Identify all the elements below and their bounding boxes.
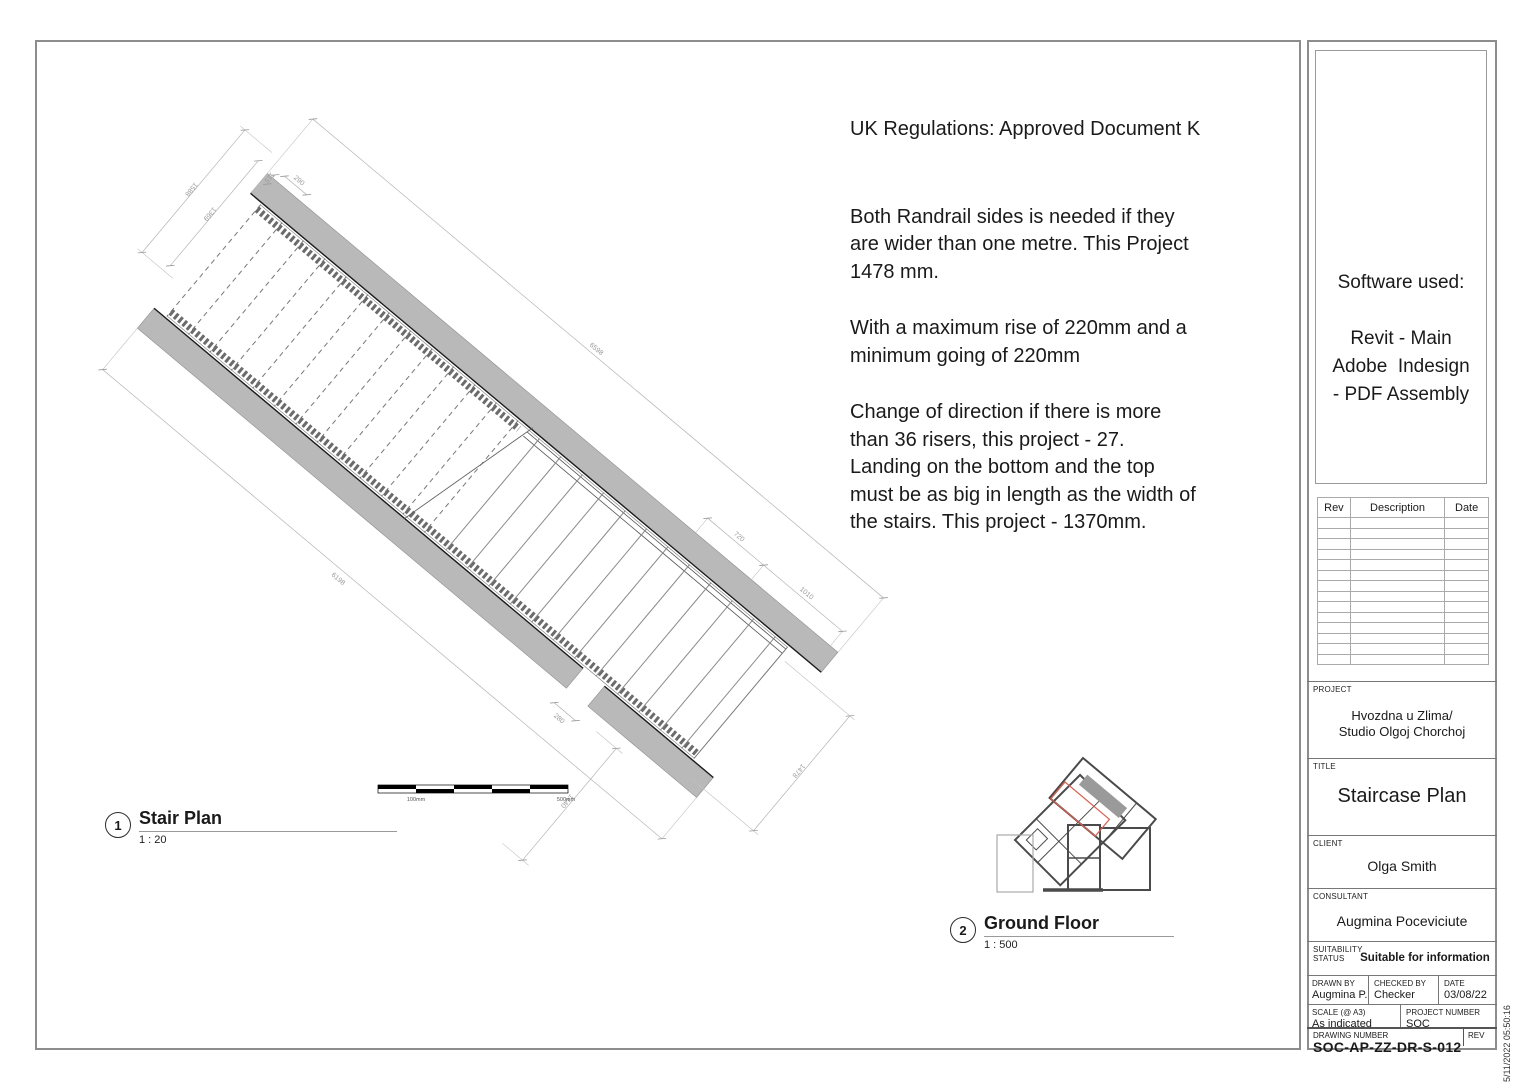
- view-scale: 1 : 500: [984, 939, 1174, 951]
- checked-by-label: CHECKED BY: [1374, 979, 1438, 988]
- revision-row-empty: [1318, 623, 1489, 634]
- view-title: Ground Floor: [984, 913, 1174, 937]
- revision-row-empty: [1318, 560, 1489, 571]
- revision-row-empty: [1318, 644, 1489, 655]
- scale-bar-label-left: 100mm: [407, 797, 426, 803]
- consultant-name: Augmina Poceviciute: [1307, 913, 1497, 929]
- sheet-title: Staircase Plan: [1307, 785, 1497, 808]
- client-section: CLIENT Olga Smith: [1307, 835, 1497, 888]
- view-number-badge: 1: [105, 812, 131, 838]
- title-label: TITLE: [1313, 762, 1336, 771]
- suitability-section: SUITABILITY STATUS Suitable for informat…: [1307, 941, 1497, 975]
- upper-wall: [251, 173, 838, 672]
- drawn-by-label: DRAWN BY: [1312, 979, 1368, 988]
- revision-row-empty: [1318, 518, 1489, 529]
- dimension-text-flight_upper_total: 6598: [588, 342, 605, 357]
- revision-table: Rev Description Date: [1317, 497, 1489, 665]
- suitability-status: Suitable for information: [1357, 952, 1493, 964]
- project-section: PROJECT Hvozdna u Zlima/ Studio Olgoj Ch…: [1307, 681, 1497, 758]
- consultant-section: CONSULTANT Augmina Poceviciute: [1307, 888, 1497, 941]
- revision-row-empty: [1318, 633, 1489, 644]
- regulation-notes: UK Regulations: Approved Document K Both…: [850, 116, 1290, 566]
- view-label-ground-floor: 2 Ground Floor 1 : 500: [950, 913, 1174, 951]
- revision-row-empty: [1318, 654, 1489, 665]
- suitability-label: SUITABILITY STATUS: [1313, 945, 1363, 963]
- revision-row-empty: [1318, 549, 1489, 560]
- rev-cell: REV: [1463, 1029, 1498, 1046]
- scale-bar: 100mm 500mm: [378, 785, 576, 803]
- project-number-label: PROJECT NUMBER: [1406, 1008, 1497, 1017]
- view-scale: 1 : 20: [139, 834, 397, 846]
- date-label: DATE: [1444, 979, 1497, 988]
- scale-label: SCALE (@ A3): [1312, 1008, 1400, 1017]
- rev-label: REV: [1468, 1031, 1498, 1040]
- dimension-text-run_a: 720: [732, 531, 746, 544]
- view-number-badge: 2: [950, 917, 976, 943]
- project-name: Hvozdna u Zlima/ Studio Olgoj Chorchoj: [1307, 708, 1497, 740]
- client-name: Olga Smith: [1307, 858, 1497, 874]
- client-label: CLIENT: [1313, 839, 1343, 848]
- dimension-text-flight_lower_total: 6198: [330, 572, 347, 587]
- print-timestamp: 5/11/2022 05:50:16: [1502, 1005, 1512, 1082]
- revision-row-empty: [1318, 581, 1489, 592]
- dimension-text-wall_offset: 290: [292, 175, 306, 188]
- lower-wall-stub: [588, 686, 713, 797]
- revision-row-empty: [1318, 591, 1489, 602]
- drawing-sheet: 6598720101029015881369115619828014401478…: [0, 0, 1536, 1089]
- drawn-by-value: Augmina P.: [1312, 989, 1368, 1001]
- lower-wall: [137, 308, 583, 688]
- revision-row-empty: [1318, 528, 1489, 539]
- dimension-text-opening_gap: 280: [552, 713, 566, 726]
- revision-rows: [1318, 518, 1489, 665]
- scale-row: SCALE (@ A3) As indicated PROJECT NUMBER…: [1307, 1004, 1497, 1027]
- software-list: Software used: Revit - Main Adobe Indesi…: [1316, 269, 1486, 409]
- note-paragraph: Change of direction if there is more tha…: [850, 399, 1290, 537]
- scale-bar-label-right: 500mm: [557, 797, 576, 803]
- note-paragraph: With a maximum rise of 220mm and a minim…: [850, 315, 1290, 370]
- revision-row-empty: [1318, 539, 1489, 550]
- view-label-stair-plan: 1 Stair Plan 1 : 20: [105, 808, 397, 846]
- notes-heading: UK Regulations: Approved Document K: [850, 116, 1290, 144]
- lower-rail-dashed: [171, 312, 698, 754]
- dimension-text-top_landing_a: 1588: [183, 181, 198, 198]
- revision-row-empty: [1318, 602, 1489, 613]
- view-title: Stair Plan: [139, 808, 397, 832]
- date-col-header: Date: [1445, 498, 1489, 518]
- dimension-text-top_landing_b: 1369: [202, 205, 217, 222]
- dimension-text-stair_width: 1478: [790, 762, 805, 779]
- rev-col-header: Rev: [1318, 498, 1351, 518]
- revision-row-empty: [1318, 612, 1489, 623]
- ground-floor-plan: [997, 758, 1156, 892]
- checked-by-value: Checker: [1374, 989, 1438, 1001]
- project-label: PROJECT: [1313, 685, 1352, 694]
- software-box: Software used: Revit - Main Adobe Indesi…: [1315, 50, 1487, 484]
- drawing-number-value: SOC-AP-ZZ-DR-S-012: [1313, 1039, 1462, 1055]
- drawing-number-row: DRAWING NUMBER SOC-AP-ZZ-DR-S-012 REV: [1307, 1027, 1497, 1046]
- title-section: TITLE Staircase Plan: [1307, 758, 1497, 835]
- note-paragraph: Both Randrail sides is needed if they ar…: [850, 204, 1290, 287]
- consultant-label: CONSULTANT: [1313, 892, 1368, 901]
- landing-edge: [694, 647, 788, 759]
- dimension-text-run_b: 1010: [798, 586, 815, 601]
- description-col-header: Description: [1350, 498, 1444, 518]
- date-value: 03/08/22: [1444, 989, 1497, 1001]
- revision-row-empty: [1318, 570, 1489, 581]
- upper-rail-dashed: [257, 209, 519, 429]
- drawn-row: DRAWN BY Augmina P. CHECKED BY Checker D…: [1307, 975, 1497, 1004]
